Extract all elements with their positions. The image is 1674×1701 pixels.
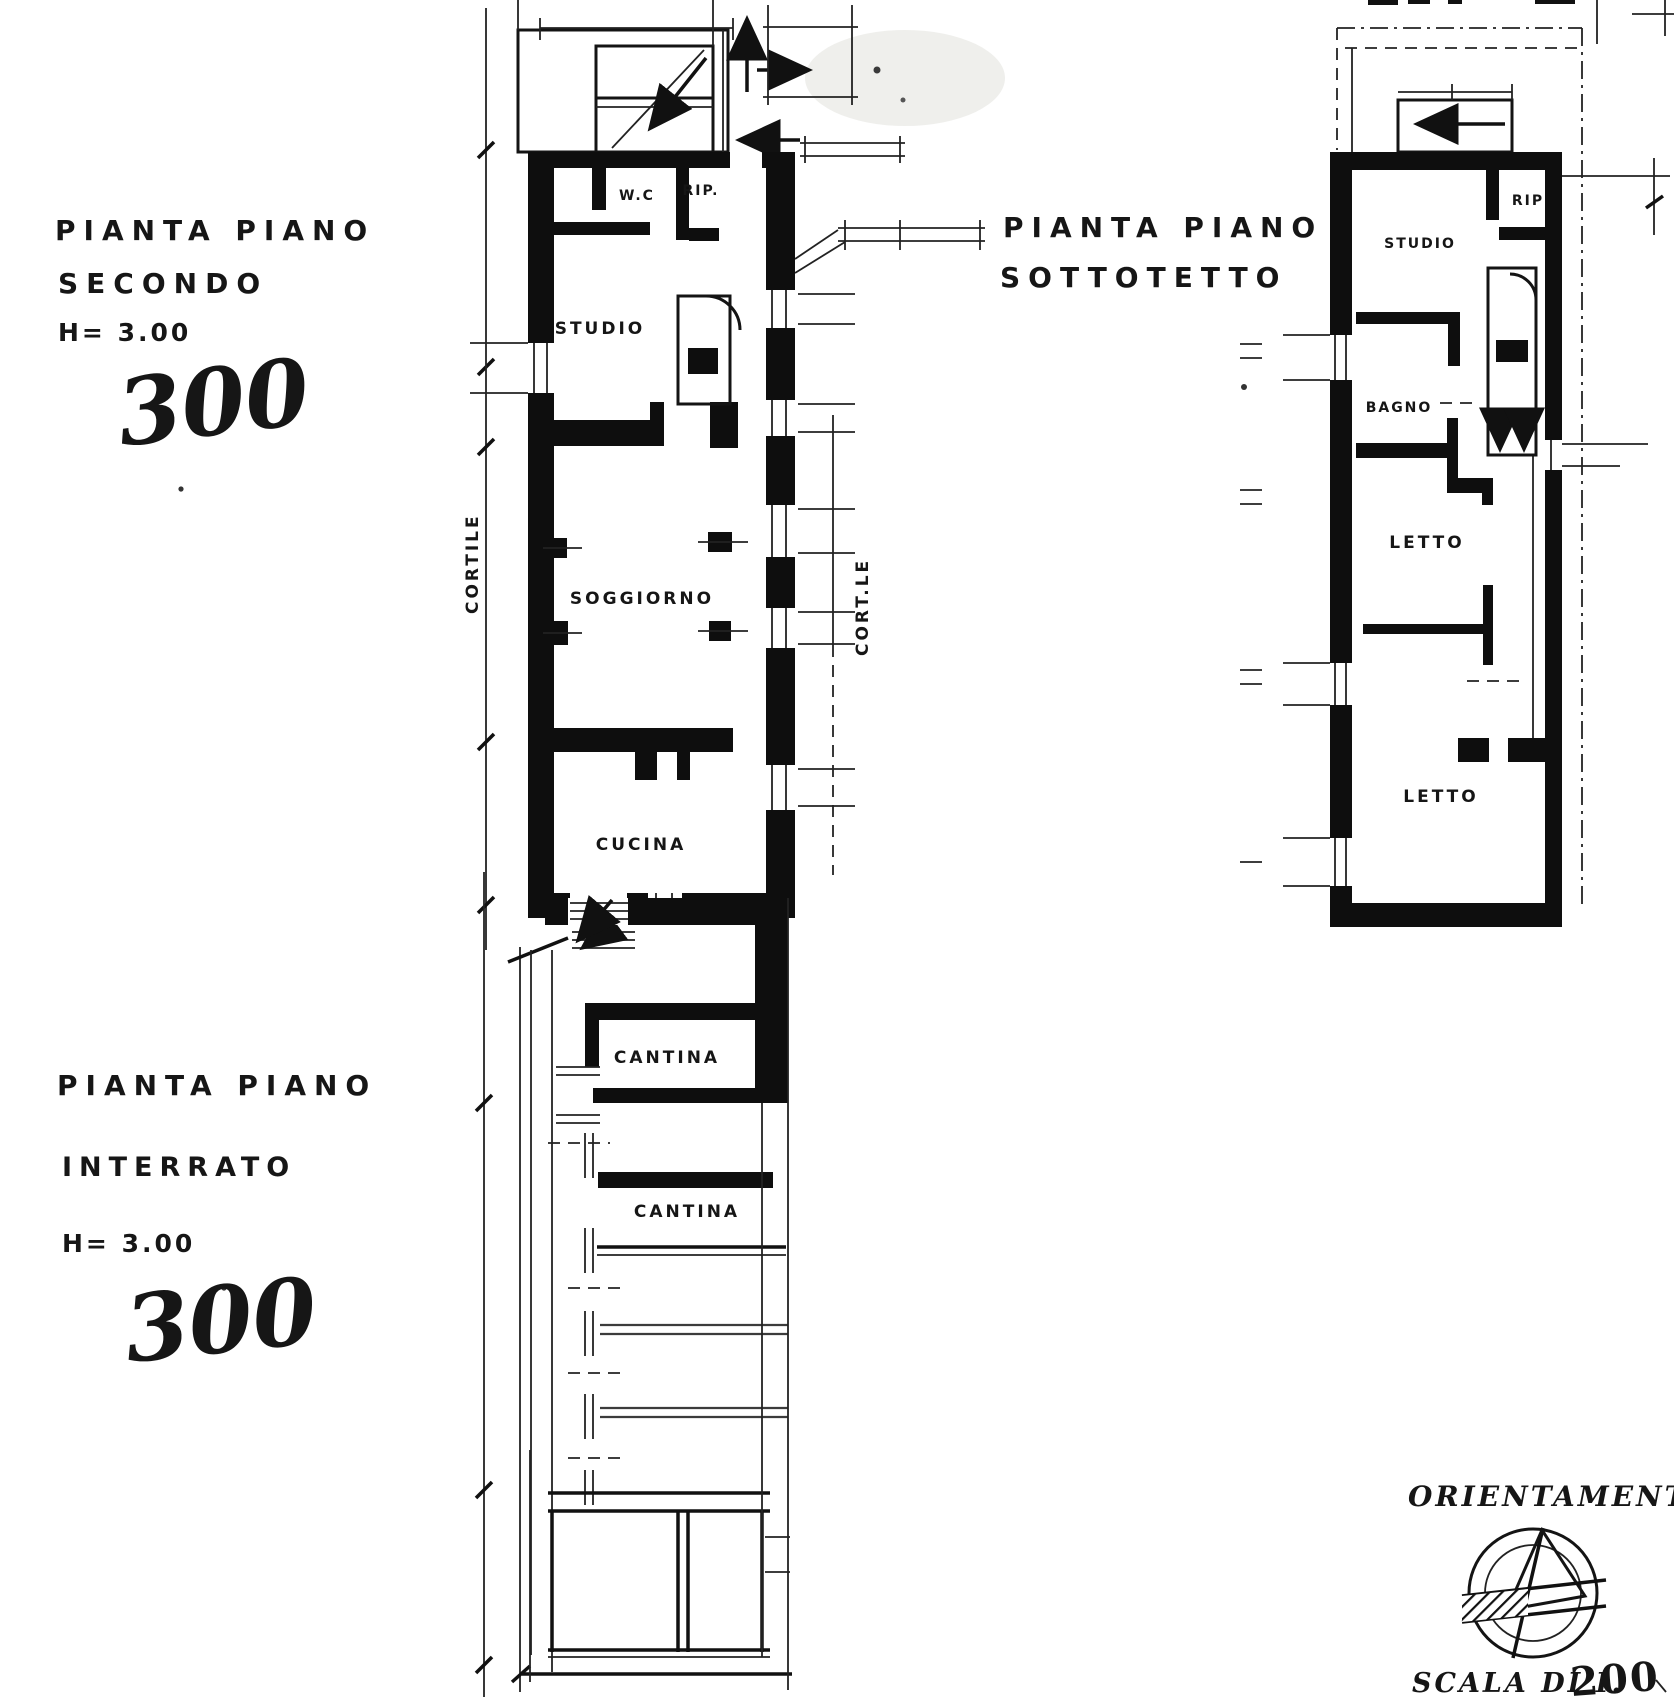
courtyard-left-label: CORTILE — [463, 513, 483, 614]
exterior-staircase — [518, 0, 728, 152]
top-wall — [545, 898, 788, 1103]
room-label-soggiorno: SOGGIORNO — [570, 589, 714, 609]
plan-secondo-title-line2: SECONDO — [58, 267, 268, 300]
room-label-bagno: BAGNO — [1366, 400, 1433, 416]
interior-stair — [678, 296, 740, 404]
interior-walls — [1356, 170, 1562, 762]
interior-walls — [550, 168, 738, 780]
scan-artifacts — [178, 0, 1575, 1291]
plan-interrato-height-note: H= 3.00 — [62, 1229, 195, 1258]
plan-interrato: CANTINA CANTINA — [476, 872, 792, 1697]
plan-secondo: CORTILE CORT.LE W.C RIP. STUDIO SOGGIORN… — [463, 0, 985, 950]
plan-interrato-title-line2: INTERRATO — [62, 1152, 296, 1183]
room-label-studio: STUDIO — [1384, 236, 1456, 252]
plan-sottotetto: RIP STUDIO BAGNO LETTO LETTO — [1240, 0, 1674, 927]
plan-secondo-height-handwritten: 300 — [111, 337, 315, 468]
corridor-walls — [531, 950, 552, 1672]
interior-stair — [1488, 268, 1536, 455]
title-block-sottotetto: PIANTA PIANO SOTTOTETTO — [1000, 211, 1323, 294]
room-label-cantina-upper: CANTINA — [614, 1048, 720, 1068]
orientation-title: ORIENTAMENTO — [1408, 1480, 1674, 1513]
architectural-drawing-sheet: PIANTA PIANO SECONDO H= 3.00 300 — [0, 0, 1674, 1701]
floor-plan-drawing: PIANTA PIANO SECONDO H= 3.00 300 — [0, 0, 1674, 1701]
corridor-door-jambs — [568, 1133, 620, 1505]
plan-sottotetto-title-line2: SOTTOTETTO — [1000, 261, 1287, 294]
orientation-block: ORIENTAMENTO SCALA DI I. 200 — [1408, 1480, 1674, 1701]
title-block-secondo: PIANTA PIANO SECONDO H= 3.00 300 — [55, 214, 375, 468]
room-label-rip: RIP. — [683, 183, 720, 199]
scale-note: SCALA DI I. 200 — [1412, 1653, 1666, 1701]
top-staircase — [1398, 84, 1512, 152]
left-dimension-line — [478, 8, 494, 950]
room-label-rip: RIP — [1512, 193, 1544, 209]
room-label-letto-lower: LETTO — [1403, 787, 1478, 807]
plan-sottotetto-title-line1: PIANTA PIANO — [1003, 211, 1323, 244]
right-wall-window — [1545, 158, 1670, 470]
left-dimension-lines — [476, 872, 568, 1697]
outer-walls — [528, 152, 795, 918]
plan-secondo-height-note: H= 3.00 — [58, 318, 191, 347]
plan-secondo-title-line1: PIANTA PIANO — [55, 214, 375, 247]
left-wall-window — [470, 343, 556, 393]
scale-value: 200 — [1569, 1653, 1662, 1701]
room-label-wc: W.C — [619, 188, 655, 204]
title-block-interrato: PIANTA PIANO INTERRATO H= 3.00 300 — [57, 1069, 377, 1384]
cantina-upper-room — [548, 1003, 760, 1143]
room-label-cucina: CUCINA — [596, 835, 686, 855]
room-label-studio: STUDIO — [555, 319, 646, 339]
courtyard-right-label: CORT.LE — [853, 558, 873, 656]
cellar-partitions — [548, 1325, 788, 1493]
room-label-letto-upper: LETTO — [1389, 533, 1464, 553]
compass-rose-icon — [1462, 1528, 1606, 1658]
room-label-cantina-lower: CANTINA — [634, 1202, 740, 1222]
bottom-rooms — [512, 1450, 792, 1682]
plan-interrato-title-line1: PIANTA PIANO — [57, 1069, 377, 1102]
plan-interrato-height-handwritten: 300 — [120, 1257, 322, 1384]
